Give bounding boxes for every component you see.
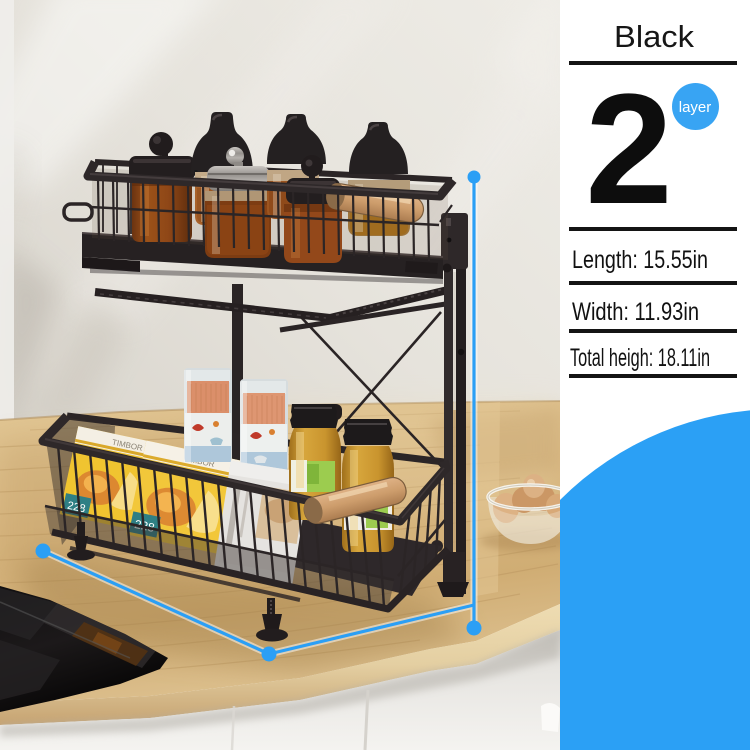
svg-text:Black: Black <box>614 19 695 54</box>
svg-text:layer: layer <box>679 99 712 116</box>
svg-text:2: 2 <box>585 62 672 237</box>
svg-text:Width: 11.93in: Width: 11.93in <box>572 298 699 326</box>
svg-text:Length: 15.55in: Length: 15.55in <box>572 246 708 274</box>
svg-text:Total heigh: 18.11in: Total heigh: 18.11in <box>570 344 710 372</box>
